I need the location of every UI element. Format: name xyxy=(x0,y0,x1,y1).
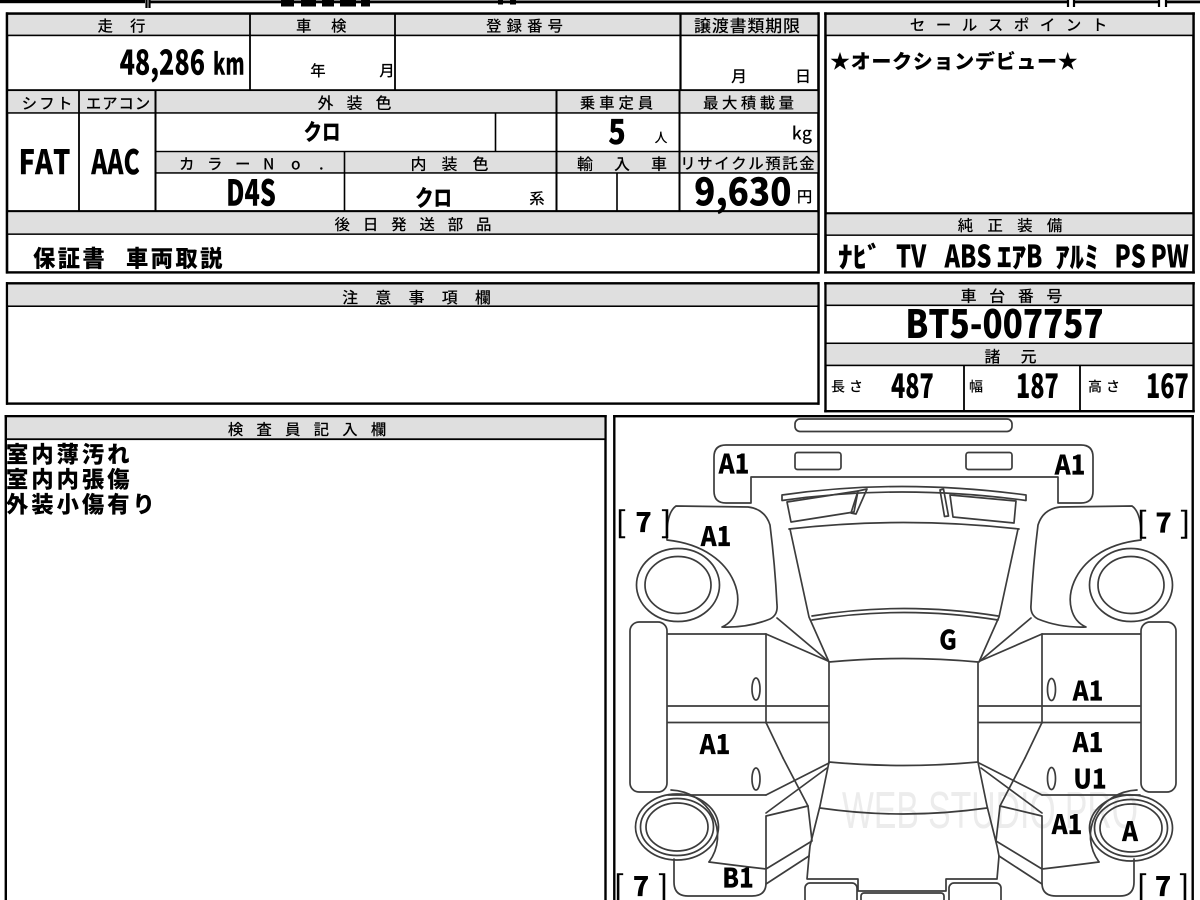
svg-text:WEB STUDIO PRO: WEB STUDIO PRO xyxy=(842,782,1138,840)
